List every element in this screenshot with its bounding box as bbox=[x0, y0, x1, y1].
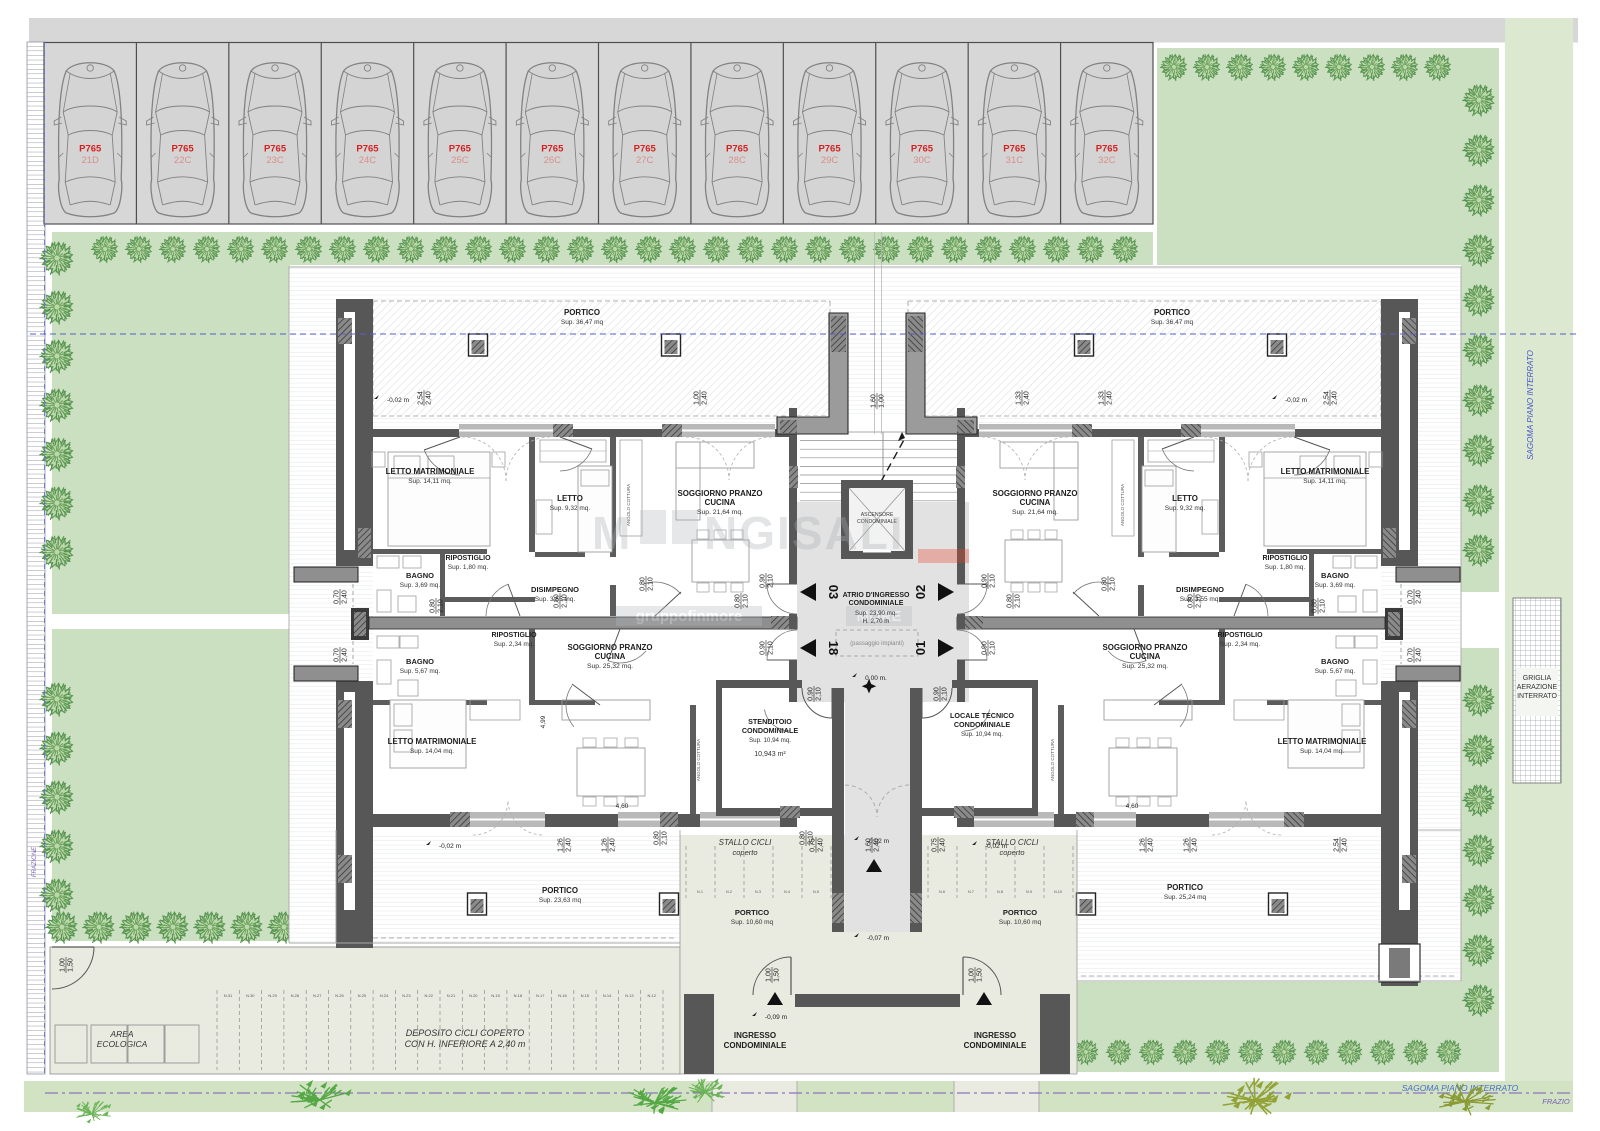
svg-text:4,60: 4,60 bbox=[1126, 803, 1139, 810]
svg-text:Sup. 3,69 mq.: Sup. 3,69 mq. bbox=[400, 582, 441, 589]
svg-text:0,00 m.: 0,00 m. bbox=[865, 675, 887, 682]
svg-text:N.23: N.23 bbox=[402, 993, 411, 998]
svg-text:31C: 31C bbox=[1006, 155, 1024, 166]
svg-text:Sup. 10,94 mq.: Sup. 10,94 mq. bbox=[961, 731, 1003, 738]
svg-text:N.10: N.10 bbox=[1054, 890, 1062, 894]
svg-text:PORTICO: PORTICO bbox=[1167, 883, 1203, 892]
svg-text:0,80: 0,80 bbox=[1188, 594, 1195, 608]
svg-text:P765: P765 bbox=[356, 144, 379, 155]
svg-text:Sup. 23,63 mq: Sup. 23,63 mq bbox=[539, 897, 582, 904]
svg-text:1,26: 1,26 bbox=[1184, 838, 1191, 852]
svg-text:2,40: 2,40 bbox=[1342, 838, 1349, 852]
svg-text:N.7: N.7 bbox=[968, 890, 974, 894]
svg-text:LETTO MATRIMONIALE: LETTO MATRIMONIALE bbox=[388, 737, 477, 746]
svg-text:Sup. 9,32 mq.: Sup. 9,32 mq. bbox=[1165, 505, 1206, 512]
svg-text:PORTICO: PORTICO bbox=[1003, 908, 1037, 917]
svg-text:Sup. 10,60 mq: Sup. 10,60 mq bbox=[999, 919, 1042, 926]
svg-text:BAGNO: BAGNO bbox=[406, 657, 434, 666]
svg-text:H. 2,70 m: H. 2,70 m bbox=[863, 618, 890, 625]
svg-text:Sup. 36,47 mq: Sup. 36,47 mq bbox=[561, 319, 604, 326]
svg-text:2,10: 2,10 bbox=[743, 594, 750, 608]
svg-text:PORTICO: PORTICO bbox=[735, 908, 769, 917]
svg-text:1,50: 1,50 bbox=[977, 968, 984, 982]
svg-text:-0,09 m: -0,09 m bbox=[765, 1014, 787, 1021]
svg-text:P765: P765 bbox=[541, 144, 564, 155]
svg-text:02: 02 bbox=[913, 585, 928, 599]
svg-text:BAGNO: BAGNO bbox=[1321, 657, 1349, 666]
svg-text:2,10: 2,10 bbox=[562, 594, 569, 608]
svg-text:gruppofinmore: gruppofinmore bbox=[636, 608, 743, 625]
svg-text:25C: 25C bbox=[451, 155, 469, 166]
svg-text:ANGOLO COTTURA: ANGOLO COTTURA bbox=[696, 739, 701, 781]
svg-text:SOGGIORNO PRANZO: SOGGIORNO PRANZO bbox=[992, 489, 1077, 498]
svg-text:CUCINA: CUCINA bbox=[705, 498, 736, 507]
svg-text:N.14: N.14 bbox=[603, 993, 612, 998]
svg-text:0,75: 0,75 bbox=[932, 838, 939, 852]
svg-text:1,00: 1,00 bbox=[694, 391, 701, 405]
svg-text:DEPOSITO CICLI COPERTO: DEPOSITO CICLI COPERTO bbox=[406, 1028, 525, 1038]
svg-text:N.22: N.22 bbox=[424, 993, 433, 998]
svg-text:0,80: 0,80 bbox=[1312, 599, 1319, 613]
svg-text:Sup. 3,69 mq.: Sup. 3,69 mq. bbox=[1315, 582, 1356, 589]
svg-text:STENDITOIO: STENDITOIO bbox=[748, 717, 792, 726]
svg-text:-0,02 m: -0,02 m bbox=[439, 843, 461, 850]
svg-text:BAGNO: BAGNO bbox=[406, 571, 434, 580]
svg-text:Sup. 25,24 mq: Sup. 25,24 mq bbox=[1164, 894, 1207, 901]
svg-text:Sup. 5,67 mq.: Sup. 5,67 mq. bbox=[400, 668, 441, 675]
svg-text:LOCALE TECNICO: LOCALE TECNICO bbox=[950, 711, 1014, 720]
svg-text:ANGOLO COTTURA: ANGOLO COTTURA bbox=[626, 484, 631, 526]
svg-text:Sup. 14,04 mq.: Sup. 14,04 mq. bbox=[1300, 748, 1344, 755]
svg-text:1,60: 1,60 bbox=[871, 394, 878, 408]
svg-text:4,99: 4,99 bbox=[540, 715, 547, 728]
svg-text:PORTICO: PORTICO bbox=[564, 308, 600, 317]
svg-text:P765: P765 bbox=[172, 144, 195, 155]
svg-text:0,90: 0,90 bbox=[934, 687, 941, 701]
svg-text:FRAZIONE: FRAZIONE bbox=[32, 846, 38, 877]
svg-text:1,50: 1,50 bbox=[68, 958, 75, 972]
svg-text:CUCINA: CUCINA bbox=[1130, 652, 1161, 661]
svg-text:Sup. 14,11 mq.: Sup. 14,11 mq. bbox=[1303, 478, 1347, 485]
svg-text:0,80: 0,80 bbox=[554, 594, 561, 608]
svg-text:ANGOLO COTTURA: ANGOLO COTTURA bbox=[1120, 484, 1125, 526]
svg-text:N.20: N.20 bbox=[469, 993, 478, 998]
svg-text:Sup. 14,11 mq.: Sup. 14,11 mq. bbox=[408, 478, 452, 485]
svg-text:N.29: N.29 bbox=[268, 993, 277, 998]
svg-text:Sup. 10,60 mq: Sup. 10,60 mq bbox=[731, 919, 774, 926]
svg-text:2,10: 2,10 bbox=[768, 574, 775, 588]
svg-text:2,40: 2,40 bbox=[566, 838, 573, 852]
svg-text:(passaggio impianti): (passaggio impianti) bbox=[850, 641, 904, 647]
svg-text:N.18: N.18 bbox=[514, 993, 523, 998]
svg-text:2,10: 2,10 bbox=[816, 687, 823, 701]
svg-text:32C: 32C bbox=[1098, 155, 1116, 166]
svg-text:N.26: N.26 bbox=[335, 993, 344, 998]
svg-text:CONDOMINIALE: CONDOMINIALE bbox=[742, 726, 799, 735]
svg-text:24C: 24C bbox=[359, 155, 377, 166]
svg-text:N.4: N.4 bbox=[784, 890, 790, 894]
svg-text:Sup. 23,90 mq.: Sup. 23,90 mq. bbox=[855, 610, 897, 617]
svg-text:0,90: 0,90 bbox=[760, 574, 767, 588]
svg-text:Sup. 36,47 mq: Sup. 36,47 mq bbox=[1151, 319, 1194, 326]
svg-text:RIPOSTIGLIO: RIPOSTIGLIO bbox=[1262, 555, 1308, 562]
svg-text:2,10: 2,10 bbox=[768, 641, 775, 655]
svg-text:2,40: 2,40 bbox=[1192, 838, 1199, 852]
svg-text:N.6: N.6 bbox=[939, 890, 945, 894]
svg-text:AERAZIONE: AERAZIONE bbox=[1517, 684, 1558, 691]
svg-text:2,10: 2,10 bbox=[1320, 599, 1327, 613]
svg-text:22C: 22C bbox=[174, 155, 192, 166]
svg-text:ANGOLO COTTURA: ANGOLO COTTURA bbox=[1050, 739, 1055, 781]
svg-text:0,90: 0,90 bbox=[982, 574, 989, 588]
svg-text:Sup. 1,80 mq.: Sup. 1,80 mq. bbox=[1265, 564, 1306, 571]
svg-text:2,10: 2,10 bbox=[942, 687, 949, 701]
svg-text:30C: 30C bbox=[913, 155, 931, 166]
svg-text:23C: 23C bbox=[266, 155, 284, 166]
svg-text:N.3: N.3 bbox=[755, 890, 761, 894]
svg-text:01: 01 bbox=[913, 641, 928, 655]
svg-text:0,70: 0,70 bbox=[1408, 648, 1415, 662]
svg-text:P765: P765 bbox=[264, 144, 287, 155]
svg-text:CUCINA: CUCINA bbox=[1020, 498, 1051, 507]
svg-text:10,943 m²: 10,943 m² bbox=[754, 751, 786, 758]
svg-text:LETTO: LETTO bbox=[557, 494, 583, 503]
svg-text:Sup. 2,34 mq.: Sup. 2,34 mq. bbox=[494, 641, 535, 648]
svg-text:2,54: 2,54 bbox=[1334, 838, 1341, 852]
svg-text:Sup. 21,64 mq.: Sup. 21,64 mq. bbox=[697, 509, 743, 516]
svg-text:N.24: N.24 bbox=[380, 993, 389, 998]
svg-text:Sup. 25,32 mq.: Sup. 25,32 mq. bbox=[1122, 663, 1168, 670]
svg-text:N.19: N.19 bbox=[491, 993, 500, 998]
svg-text:0,80: 0,80 bbox=[640, 577, 647, 591]
svg-text:2,10: 2,10 bbox=[1110, 577, 1117, 591]
svg-text:PORTICO: PORTICO bbox=[542, 886, 578, 895]
svg-text:P765: P765 bbox=[79, 144, 102, 155]
svg-text:2,40: 2,40 bbox=[1024, 391, 1031, 405]
svg-text:N.28: N.28 bbox=[291, 993, 300, 998]
svg-text:2,10: 2,10 bbox=[648, 577, 655, 591]
svg-text:BAGNO: BAGNO bbox=[1321, 571, 1349, 580]
svg-text:N.21: N.21 bbox=[447, 993, 456, 998]
svg-text:0,90: 0,90 bbox=[808, 687, 815, 701]
svg-text:2,40: 2,40 bbox=[818, 838, 825, 852]
svg-text:26C: 26C bbox=[544, 155, 562, 166]
svg-text:SAGOMA PIANO INTERRATO: SAGOMA PIANO INTERRATO bbox=[1526, 350, 1535, 460]
svg-text:P765: P765 bbox=[818, 144, 841, 155]
svg-text:DISIMPEGNO: DISIMPEGNO bbox=[1176, 585, 1224, 594]
svg-text:AREA: AREA bbox=[109, 1029, 133, 1039]
svg-text:INGRESSO: INGRESSO bbox=[974, 1031, 1016, 1040]
svg-text:P765: P765 bbox=[449, 144, 472, 155]
svg-text:28C: 28C bbox=[728, 155, 746, 166]
svg-text:RIPOSTIGLIO: RIPOSTIGLIO bbox=[491, 632, 537, 639]
svg-text:CUCINA: CUCINA bbox=[595, 652, 626, 661]
svg-text:2,40: 2,40 bbox=[1148, 838, 1155, 852]
svg-text:1,00: 1,00 bbox=[60, 958, 67, 972]
svg-text:ATRIO D'INGRESSO: ATRIO D'INGRESSO bbox=[843, 592, 910, 599]
svg-text:2,10: 2,10 bbox=[662, 831, 669, 845]
svg-text:N.1: N.1 bbox=[697, 890, 703, 894]
svg-text:Sup. 14,04 mq.: Sup. 14,04 mq. bbox=[410, 748, 454, 755]
svg-text:-0,02 m: -0,02 m bbox=[867, 838, 889, 845]
svg-text:2,40: 2,40 bbox=[940, 838, 947, 852]
svg-text:2,10: 2,10 bbox=[1196, 594, 1203, 608]
svg-text:1,00: 1,00 bbox=[879, 394, 886, 408]
svg-text:ECOLOGICA: ECOLOGICA bbox=[97, 1039, 148, 1049]
svg-text:PORTICO: PORTICO bbox=[1154, 308, 1190, 317]
svg-text:1,26: 1,26 bbox=[558, 838, 565, 852]
svg-text:0,70: 0,70 bbox=[334, 648, 341, 662]
svg-text:SOGGIORNO PRANZO: SOGGIORNO PRANZO bbox=[1102, 643, 1187, 652]
svg-text:2,54: 2,54 bbox=[1324, 391, 1331, 405]
svg-text:2,40: 2,40 bbox=[342, 648, 349, 662]
svg-text:RIPOSTIGLIO: RIPOSTIGLIO bbox=[445, 555, 491, 562]
svg-text:P765: P765 bbox=[634, 144, 657, 155]
svg-text:-0,02 m: -0,02 m bbox=[1285, 397, 1307, 404]
svg-text:29C: 29C bbox=[821, 155, 839, 166]
svg-text:2,40: 2,40 bbox=[1416, 590, 1423, 604]
svg-text:N.8: N.8 bbox=[997, 890, 1003, 894]
svg-text:2,40: 2,40 bbox=[342, 590, 349, 604]
svg-text:N.2: N.2 bbox=[726, 890, 732, 894]
svg-text:P765: P765 bbox=[726, 144, 749, 155]
svg-text:21D: 21D bbox=[81, 155, 99, 166]
svg-text:Sup. 5,67 mq.: Sup. 5,67 mq. bbox=[1315, 668, 1356, 675]
svg-text:1,00: 1,00 bbox=[969, 968, 976, 982]
svg-text:2,54: 2,54 bbox=[418, 391, 425, 405]
svg-text:2,40: 2,40 bbox=[702, 391, 709, 405]
svg-text:0,75: 0,75 bbox=[810, 838, 817, 852]
svg-text:P765: P765 bbox=[1003, 144, 1026, 155]
svg-text:LETTO MATRIMONIALE: LETTO MATRIMONIALE bbox=[1281, 467, 1370, 476]
svg-text:1,50: 1,50 bbox=[774, 968, 781, 982]
svg-text:N.31: N.31 bbox=[224, 993, 233, 998]
svg-text:2,10: 2,10 bbox=[990, 574, 997, 588]
svg-text:N.5: N.5 bbox=[813, 890, 819, 894]
svg-text:1,33: 1,33 bbox=[1016, 391, 1023, 405]
svg-text:0,80: 0,80 bbox=[430, 599, 437, 613]
svg-text:0,70: 0,70 bbox=[1408, 590, 1415, 604]
svg-text:-0,02 m: -0,02 m bbox=[985, 843, 1007, 850]
svg-text:Sup. 21,64 mq.: Sup. 21,64 mq. bbox=[1012, 509, 1058, 516]
svg-text:0,70: 0,70 bbox=[334, 590, 341, 604]
svg-text:1,00: 1,00 bbox=[766, 968, 773, 982]
svg-text:2,40: 2,40 bbox=[1107, 391, 1114, 405]
svg-text:N.27: N.27 bbox=[313, 993, 322, 998]
svg-text:INGRESSO: INGRESSO bbox=[734, 1031, 776, 1040]
svg-text:SOGGIORNO PRANZO: SOGGIORNO PRANZO bbox=[567, 643, 652, 652]
svg-text:N.16: N.16 bbox=[558, 993, 567, 998]
svg-text:P765: P765 bbox=[1096, 144, 1119, 155]
svg-text:0,80: 0,80 bbox=[800, 831, 807, 845]
svg-text:2,40: 2,40 bbox=[426, 391, 433, 405]
svg-text:Sup. 25,32 mq.: Sup. 25,32 mq. bbox=[587, 663, 633, 670]
svg-text:FRAZIO: FRAZIO bbox=[1542, 1097, 1570, 1106]
svg-text:0,80: 0,80 bbox=[735, 594, 742, 608]
svg-text:4,60: 4,60 bbox=[616, 803, 629, 810]
svg-text:INTERRATO: INTERRATO bbox=[1517, 693, 1557, 700]
svg-text:CONDOMINIALE: CONDOMINIALE bbox=[954, 720, 1011, 729]
svg-text:CONDOMINIALE: CONDOMINIALE bbox=[849, 600, 904, 607]
svg-text:RIPOSTIGLIO: RIPOSTIGLIO bbox=[1217, 632, 1263, 639]
svg-text:0,90: 0,90 bbox=[982, 641, 989, 655]
svg-text:2,40: 2,40 bbox=[1332, 391, 1339, 405]
svg-text:27C: 27C bbox=[636, 155, 654, 166]
svg-text:2,10: 2,10 bbox=[1015, 594, 1022, 608]
svg-text:LETTO MATRIMONIALE: LETTO MATRIMONIALE bbox=[1278, 737, 1367, 746]
svg-text:N.12: N.12 bbox=[647, 993, 656, 998]
svg-text:P765: P765 bbox=[911, 144, 934, 155]
svg-text:N.9: N.9 bbox=[1026, 890, 1032, 894]
svg-text:Sup. 2,34 mq.: Sup. 2,34 mq. bbox=[1220, 641, 1261, 648]
svg-text:coperto: coperto bbox=[732, 848, 757, 857]
svg-text:N.17: N.17 bbox=[536, 993, 545, 998]
svg-text:N.13: N.13 bbox=[625, 993, 634, 998]
svg-text:1,26: 1,26 bbox=[602, 838, 609, 852]
svg-text:DISIMPEGNO: DISIMPEGNO bbox=[531, 585, 579, 594]
svg-text:2,40: 2,40 bbox=[1416, 648, 1423, 662]
svg-text:0,80: 0,80 bbox=[1007, 594, 1014, 608]
svg-text:2,40: 2,40 bbox=[610, 838, 617, 852]
svg-text:18: 18 bbox=[826, 641, 841, 655]
svg-text:CONDOMINIALE: CONDOMINIALE bbox=[964, 1041, 1027, 1050]
svg-text:CON H. INFERIORE A 2,40 m: CON H. INFERIORE A 2,40 m bbox=[405, 1039, 526, 1049]
svg-text:1,26: 1,26 bbox=[1140, 838, 1147, 852]
svg-text:SOGGIORNO PRANZO: SOGGIORNO PRANZO bbox=[677, 489, 762, 498]
svg-text:0,80: 0,80 bbox=[654, 831, 661, 845]
svg-text:03: 03 bbox=[826, 585, 841, 599]
svg-text:2,10: 2,10 bbox=[990, 641, 997, 655]
svg-text:CONDOMINIALE: CONDOMINIALE bbox=[724, 1041, 787, 1050]
svg-text:LETTO: LETTO bbox=[1172, 494, 1198, 503]
svg-text:STALLO CICLI: STALLO CICLI bbox=[719, 838, 773, 847]
svg-text:Sup. 1,80 mq.: Sup. 1,80 mq. bbox=[448, 564, 489, 571]
svg-text:-0,02 m: -0,02 m bbox=[387, 397, 409, 404]
svg-text:GRIGLIA: GRIGLIA bbox=[1523, 675, 1552, 682]
svg-text:Sup. 10,94 mq.: Sup. 10,94 mq. bbox=[749, 737, 791, 744]
svg-text:LETTO MATRIMONIALE: LETTO MATRIMONIALE bbox=[386, 467, 475, 476]
svg-text:N.25: N.25 bbox=[358, 993, 367, 998]
svg-text:0,80: 0,80 bbox=[1102, 577, 1109, 591]
svg-text:0,90: 0,90 bbox=[760, 641, 767, 655]
svg-text:Sup. 9,32 mq.: Sup. 9,32 mq. bbox=[550, 505, 591, 512]
svg-text:N.30: N.30 bbox=[246, 993, 255, 998]
svg-text:N.15: N.15 bbox=[581, 993, 590, 998]
svg-text:-0,07 m: -0,07 m bbox=[867, 935, 889, 942]
svg-text:2,10: 2,10 bbox=[438, 599, 445, 613]
svg-text:1,33: 1,33 bbox=[1099, 391, 1106, 405]
